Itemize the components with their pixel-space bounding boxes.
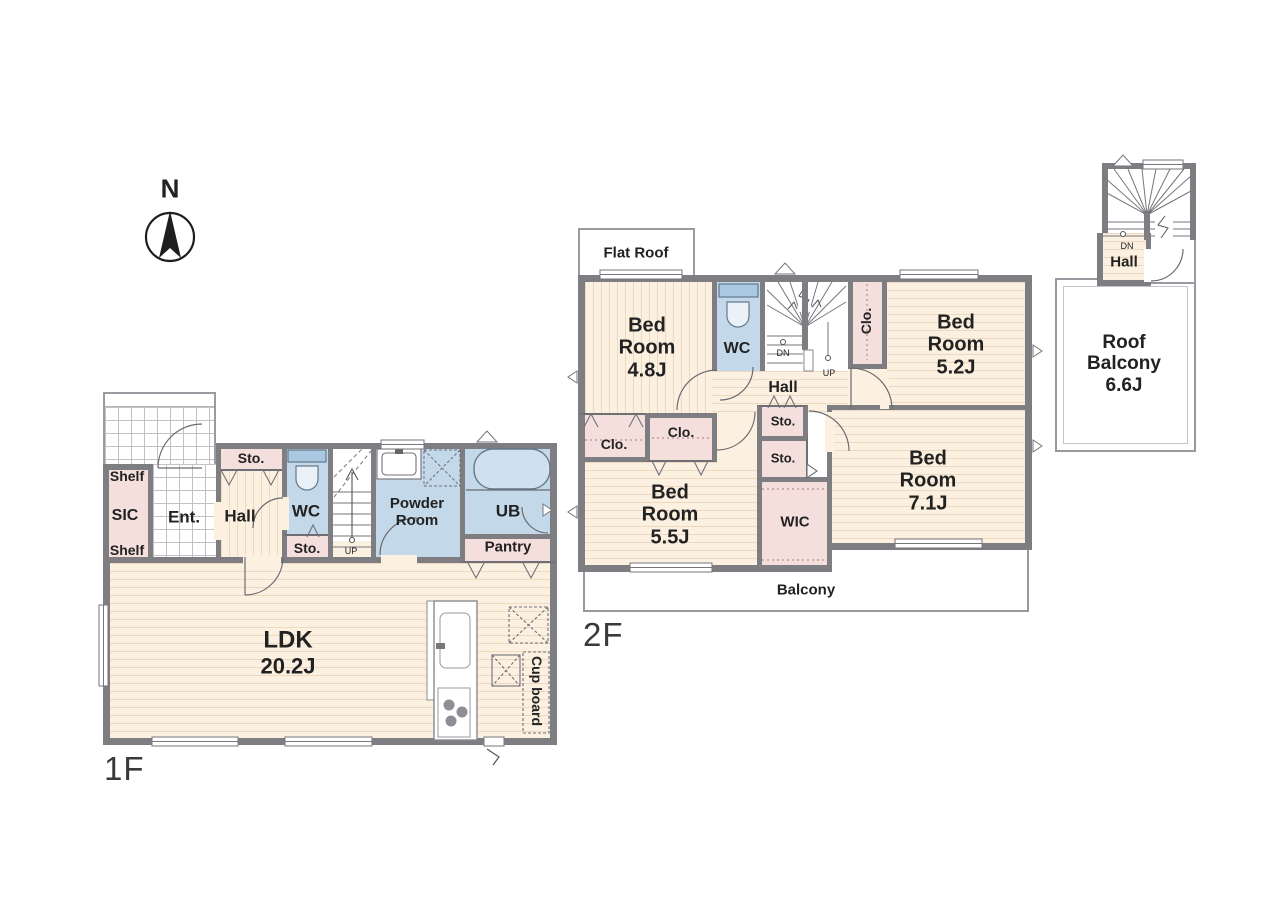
label-bed71-line1: Bed (900, 447, 957, 469)
label-wc-1f: WC (292, 501, 320, 520)
floor-label-2f: 2F (583, 616, 624, 654)
room-stairs-roof (1102, 163, 1196, 240)
room-ldk (103, 557, 557, 745)
opening-bed71 (825, 412, 834, 452)
opening-hall-ldk (243, 555, 281, 565)
label-clo-b: Clo. (668, 425, 694, 441)
opening-hall-roof (1144, 249, 1153, 282)
label-bed55-line1: Bed (642, 481, 699, 503)
label-roof-balcony-line1: Roof (1087, 332, 1161, 353)
label-clo-a: Clo. (601, 437, 627, 453)
compass-north-label: N (161, 174, 180, 203)
label-hall-1f: Hall (224, 506, 255, 525)
label-wc-2f: WC (724, 340, 751, 358)
label-powder-line2: Room (390, 513, 444, 530)
label-bed52-line3: 5.2J (928, 356, 985, 378)
label-up-1f: UP (345, 546, 358, 556)
opening-bed55 (717, 455, 757, 464)
label-up-2f: UP (823, 368, 836, 378)
label-roof-balcony-line3: 6.6J (1087, 375, 1161, 396)
room-stairs-1f (328, 443, 376, 541)
label-bed52-line2: Room (928, 334, 985, 356)
label-dn-roof: DN (1121, 241, 1134, 251)
label-bed48-line3: 4.8J (619, 359, 676, 381)
label-shelf-top: Shelf (110, 469, 144, 485)
room-wc-1f (282, 443, 333, 539)
label-bed55: Bed Room 5.5J (642, 481, 699, 548)
label-bed55-line3: 5.5J (642, 526, 699, 548)
label-cupboard: Cup board (528, 656, 544, 726)
label-flat-roof: Flat Roof (604, 246, 669, 263)
opening-bed52 (880, 371, 889, 409)
label-bed52-line1: Bed (928, 311, 985, 333)
label-sto-hall-1f: Sto. (238, 451, 264, 467)
label-ldk-line2: 20.2J (260, 654, 315, 679)
floor-label-1f: 1F (104, 750, 145, 788)
label-dn-2f: DN (777, 348, 790, 358)
label-bed48-line1: Bed (619, 314, 676, 336)
label-balcony-2f: Balcony (777, 583, 835, 600)
label-sic: SIC (112, 507, 139, 525)
opening-wc-1f (280, 497, 289, 530)
label-ldk: LDK 20.2J (260, 627, 315, 679)
label-clo-stair: Clo. (859, 308, 875, 334)
label-sto-b-2f: Sto. (771, 452, 796, 467)
porch-step (105, 394, 214, 407)
label-powder-line1: Powder (390, 496, 444, 513)
label-powder: Powder Room (390, 496, 444, 530)
roof-bulkhead (1148, 235, 1196, 284)
label-bed55-line2: Room (642, 504, 699, 526)
label-bed48: Bed Room 4.8J (619, 314, 676, 381)
label-sto-a-2f: Sto. (771, 415, 796, 430)
label-roof-balcony-line2: Balcony (1087, 353, 1161, 374)
room-ub (460, 443, 557, 539)
label-bed52: Bed Room 5.2J (928, 311, 985, 378)
label-roof-balcony: Roof Balcony 6.6J (1087, 332, 1161, 396)
label-bed71-line3: 7.1J (900, 492, 957, 514)
opening-ent-hall (214, 502, 223, 540)
door-mark-kitchen (487, 749, 499, 765)
label-bed71: Bed Room 7.1J (900, 447, 957, 514)
label-bed48-line2: Room (619, 337, 676, 359)
floorplan: N Shelf SIC Shelf Ent. Hall Sto. WC Sto.… (0, 0, 1280, 905)
label-shelf-bottom: Shelf (110, 543, 144, 559)
label-pantry: Pantry (485, 540, 532, 557)
label-wic: WIC (780, 515, 809, 532)
room-stairs-2f (760, 275, 853, 371)
label-sto-wc-1f: Sto. (294, 541, 320, 557)
label-ldk-line1: LDK (260, 627, 315, 654)
label-hall-roof: Hall (1110, 255, 1138, 272)
label-ub: UB (496, 501, 521, 520)
opening-powder (381, 555, 417, 565)
label-hall-2f: Hall (768, 379, 797, 397)
compass-icon (146, 211, 194, 261)
label-bed71-line2: Room (900, 470, 957, 492)
label-entrance: Ent. (168, 507, 200, 526)
